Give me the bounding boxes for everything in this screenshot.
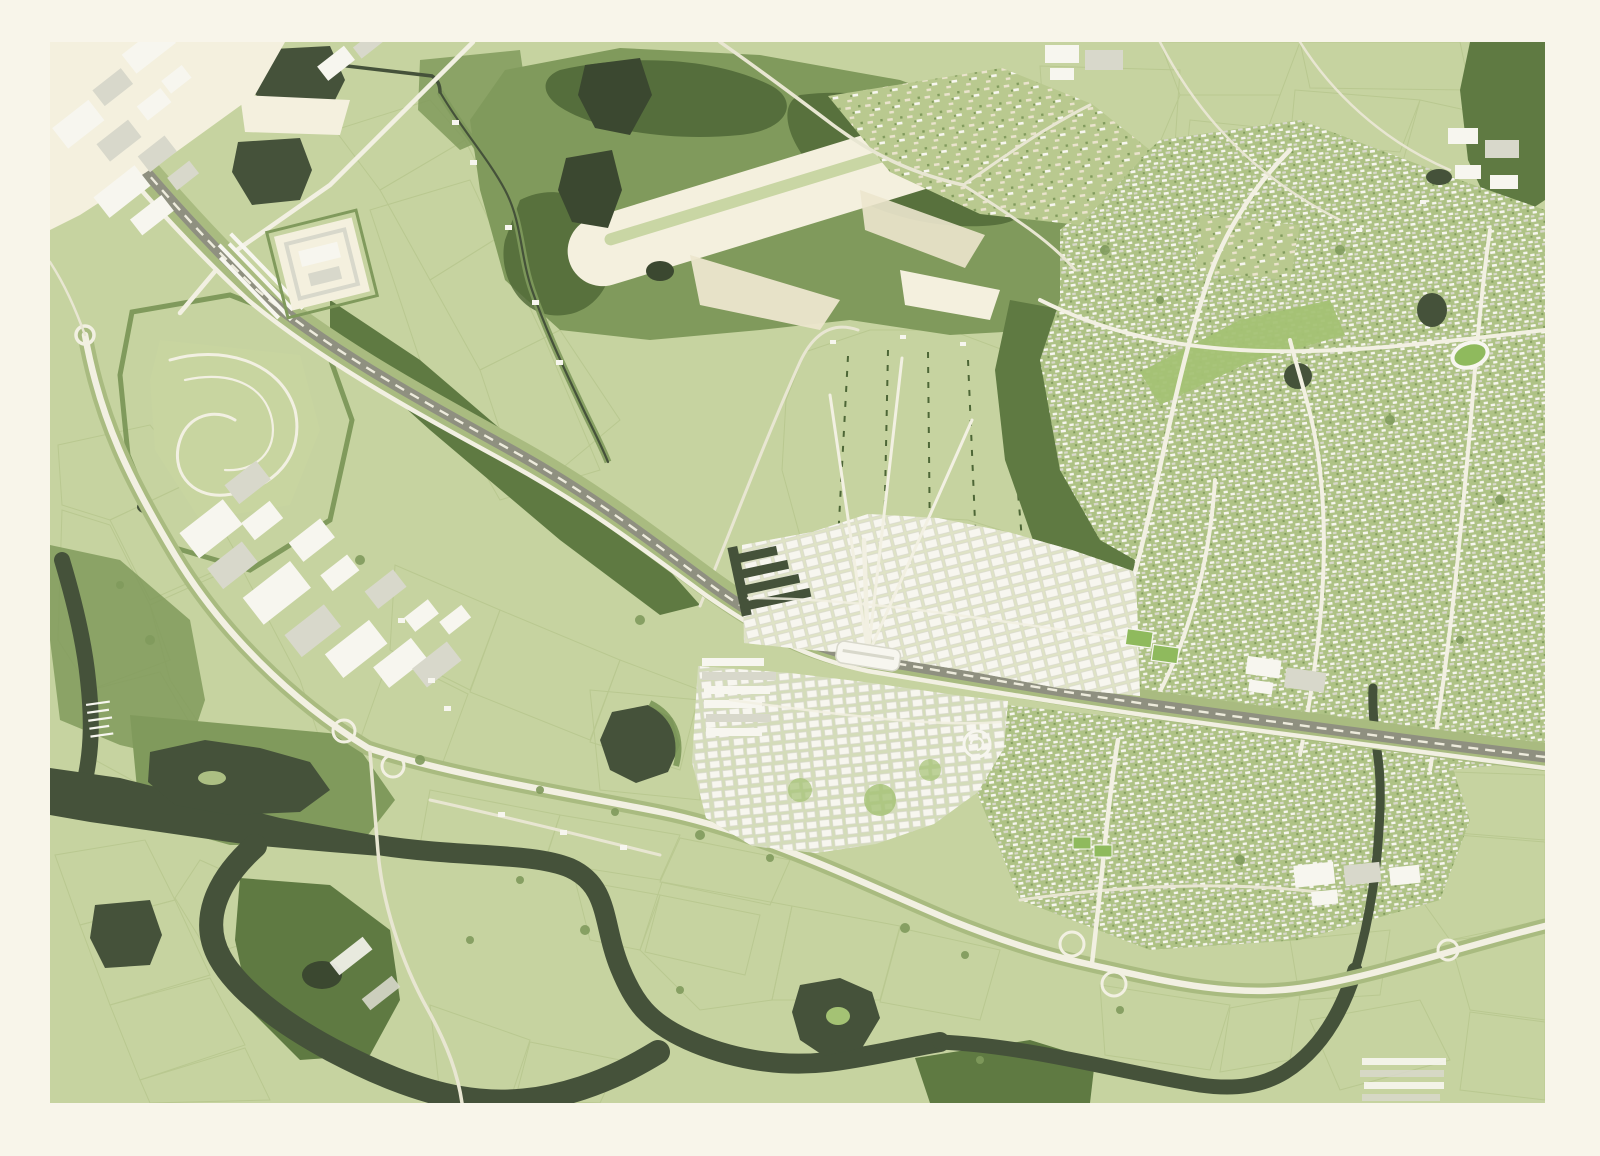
city-pond-east <box>1417 293 1447 327</box>
aerial-map-figure <box>0 0 1600 1156</box>
city-pond-north <box>1426 169 1452 185</box>
wetland-pond <box>90 900 162 968</box>
map-canvas <box>0 0 1600 1156</box>
